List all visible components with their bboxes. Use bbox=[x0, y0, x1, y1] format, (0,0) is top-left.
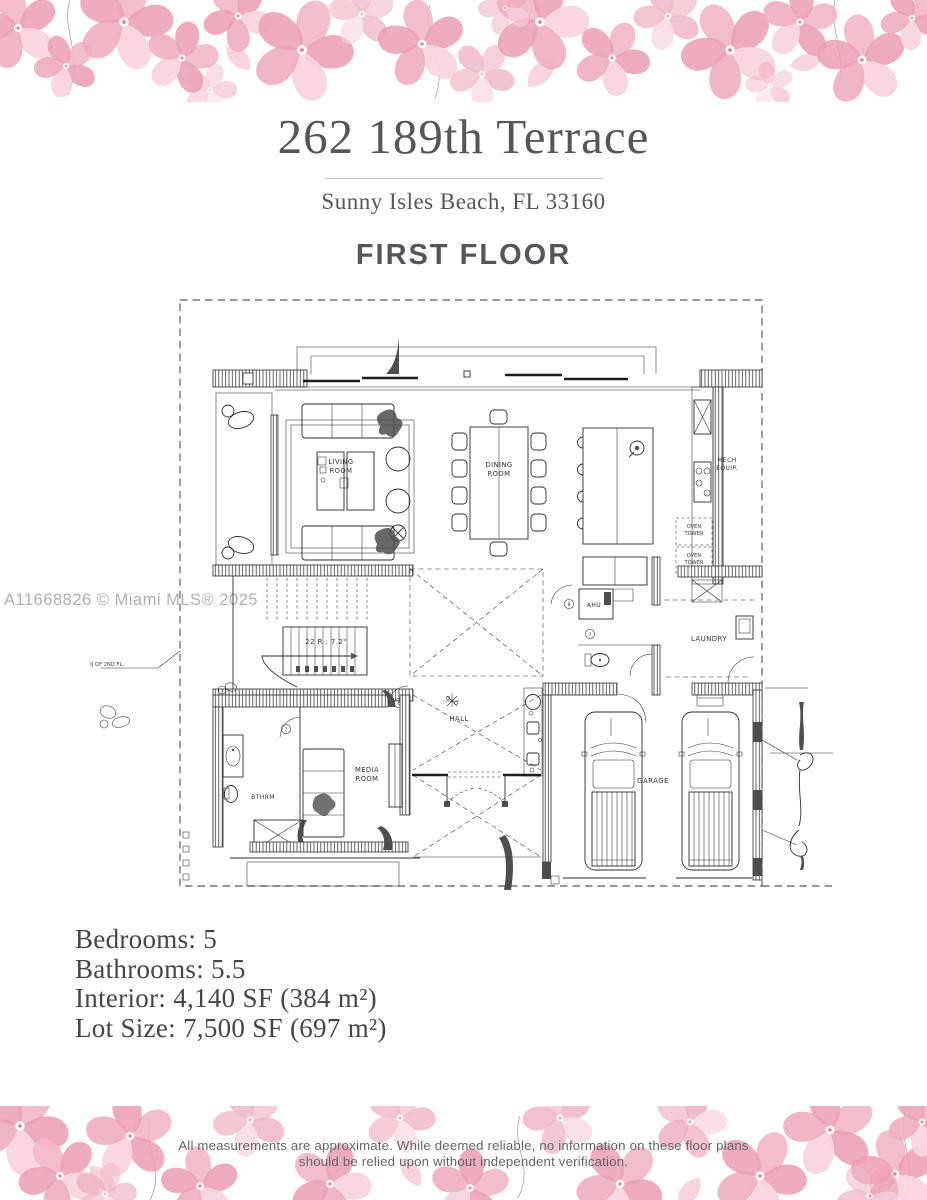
stair-note: 22 R : 7.2" bbox=[305, 638, 347, 646]
gate-ornament bbox=[762, 688, 833, 870]
svg-text:EQUIP.: EQUIP. bbox=[716, 465, 738, 472]
address-subtitle: Sunny Isles Beach, FL 33160 bbox=[0, 189, 927, 215]
open-to-above bbox=[410, 569, 543, 676]
header: 262 189th Terrace Sunny Isles Beach, FL … bbox=[0, 108, 927, 272]
detail-bathrooms: Bathrooms: 5.5 bbox=[75, 955, 387, 985]
ahu-label: AHU bbox=[587, 602, 601, 609]
door-tag: 8 bbox=[568, 602, 571, 608]
dining-room: DINING ROOM bbox=[452, 410, 546, 556]
car bbox=[582, 712, 645, 870]
bthrm-label: BTHRM bbox=[251, 794, 275, 801]
terrace bbox=[216, 393, 278, 565]
svg-text:ROOM: ROOM bbox=[356, 775, 379, 783]
car bbox=[679, 712, 742, 870]
laundry-label: LAUNDRY bbox=[691, 635, 727, 643]
detail-bedrooms: Bedrooms: 5 bbox=[75, 925, 387, 955]
mech-equip-label: MECH bbox=[717, 457, 736, 464]
floor-plan-svg: OVEN TOWER OVEN TOWER MECH EQUIP. bbox=[90, 295, 835, 905]
detail-lot-size: Lot Size: 7,500 SF (697 m²) bbox=[75, 1014, 387, 1044]
top-wall bbox=[213, 370, 762, 390]
door-tag: 7 bbox=[589, 632, 592, 638]
hall: HALL 6 bbox=[394, 688, 542, 776]
disclaimer: All measurements are approximate. While … bbox=[0, 1138, 927, 1170]
canopy-outline bbox=[297, 336, 656, 374]
garage: GARAGE bbox=[542, 683, 762, 884]
title-divider bbox=[325, 178, 603, 179]
entry-foyer bbox=[412, 695, 541, 890]
oven-tower-label: OVEN bbox=[687, 553, 702, 559]
ahu-closet: AHU 8 7 bbox=[551, 557, 660, 695]
media-room: 7 BTHRM MEDIA ROOM bbox=[98, 682, 420, 886]
living-room-label: LIVING bbox=[328, 458, 353, 466]
property-details: Bedrooms: 5 Bathrooms: 5.5 Interior: 4,1… bbox=[75, 925, 387, 1043]
projection-note: PPROJ OF 2ND FL. bbox=[90, 651, 180, 668]
page-title: 262 189th Terrace bbox=[0, 108, 927, 165]
kitchen-island bbox=[578, 428, 654, 544]
floral-border-top bbox=[0, 0, 927, 102]
property-boundary bbox=[180, 300, 833, 886]
staircase: 22 R : 7.2" bbox=[213, 565, 413, 701]
floor-label: FIRST FLOOR bbox=[0, 239, 927, 272]
oven-tower-1: OVEN TOWER bbox=[676, 518, 712, 545]
svg-text:TOWER: TOWER bbox=[683, 531, 703, 537]
disclaimer-line-2: should be relied upon without independen… bbox=[0, 1154, 927, 1170]
kitchen: OVEN TOWER OVEN TOWER MECH EQUIP. bbox=[578, 387, 738, 584]
dining-room-label: DINING bbox=[485, 461, 512, 469]
media-room-label: MEDIA bbox=[355, 766, 379, 774]
svg-text:TOWER: TOWER bbox=[683, 560, 703, 566]
door-tag: 7 bbox=[285, 727, 288, 733]
svg-text:ROOM: ROOM bbox=[488, 470, 511, 478]
svg-text:ROOM: ROOM bbox=[330, 467, 353, 475]
flyer-page: 262 189th Terrace Sunny Isles Beach, FL … bbox=[0, 0, 927, 1200]
svg-text:PPROJ OF 2ND FL.: PPROJ OF 2ND FL. bbox=[90, 662, 124, 668]
living-room: LIVING ROOM bbox=[286, 404, 414, 560]
disclaimer-line-1: All measurements are approximate. While … bbox=[0, 1138, 927, 1154]
detail-interior: Interior: 4,140 SF (384 m²) bbox=[75, 984, 387, 1014]
oven-tower-label: OVEN bbox=[687, 524, 702, 530]
